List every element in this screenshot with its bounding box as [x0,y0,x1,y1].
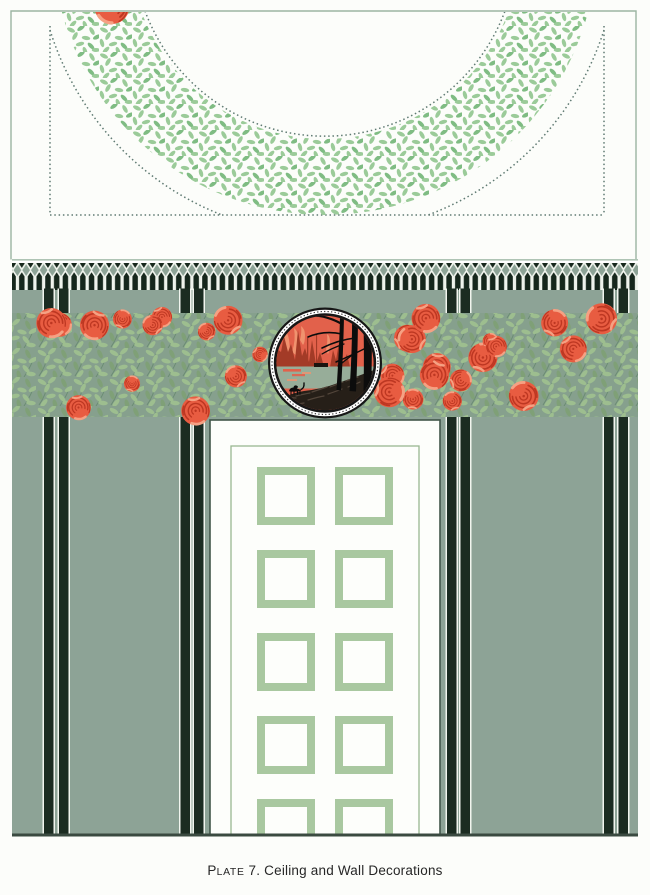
pilaster-stripe [461,417,471,835]
picket-border [12,263,638,290]
door-panel-center [265,807,307,849]
pilaster-stripe [604,417,614,835]
pilaster-stripe [181,417,191,835]
plate-illustration [0,0,650,895]
pilaster-stripe [194,417,204,835]
caption-lead: P [207,863,216,878]
plate-caption: PLATE 7. Ceiling and Wall Decorations [0,863,650,878]
pilaster-stripe [59,289,69,314]
door [210,420,440,857]
pilaster-stripe [59,417,69,835]
pilaster-stripe [619,289,629,314]
door-panel-center [343,807,385,849]
caption-rest: 7. Ceiling and Wall Decorations [245,863,443,878]
pilaster-stripe [461,289,471,314]
wall-section [12,259,638,857]
pilaster-stripe [447,289,457,314]
floor-line [12,834,638,837]
door-panel-center [343,475,385,517]
scene-barge [314,363,328,367]
door-leaf [210,420,440,835]
pilaster-stripe [181,289,191,314]
door-panel-center [265,475,307,517]
pilaster-stripe [44,417,54,835]
ceiling-rose-wreath-foliage [53,0,597,215]
pilaster-stripe [619,417,629,835]
door-panel-center [265,641,307,683]
plate-page: PLATE 7. Ceiling and Wall Decorations [0,0,650,895]
door-panel-center [343,641,385,683]
door-panel-center [265,724,307,766]
caption-small-caps: LATE [217,867,245,878]
door-panel-center [265,558,307,600]
ceiling-section [50,0,604,215]
pilaster-stripe [447,417,457,835]
book-page: { "caption": { "lead": "P", "small_caps"… [0,0,650,895]
door-panel-center [343,558,385,600]
pilaster-stripe [194,289,204,314]
door-panel-center [343,724,385,766]
